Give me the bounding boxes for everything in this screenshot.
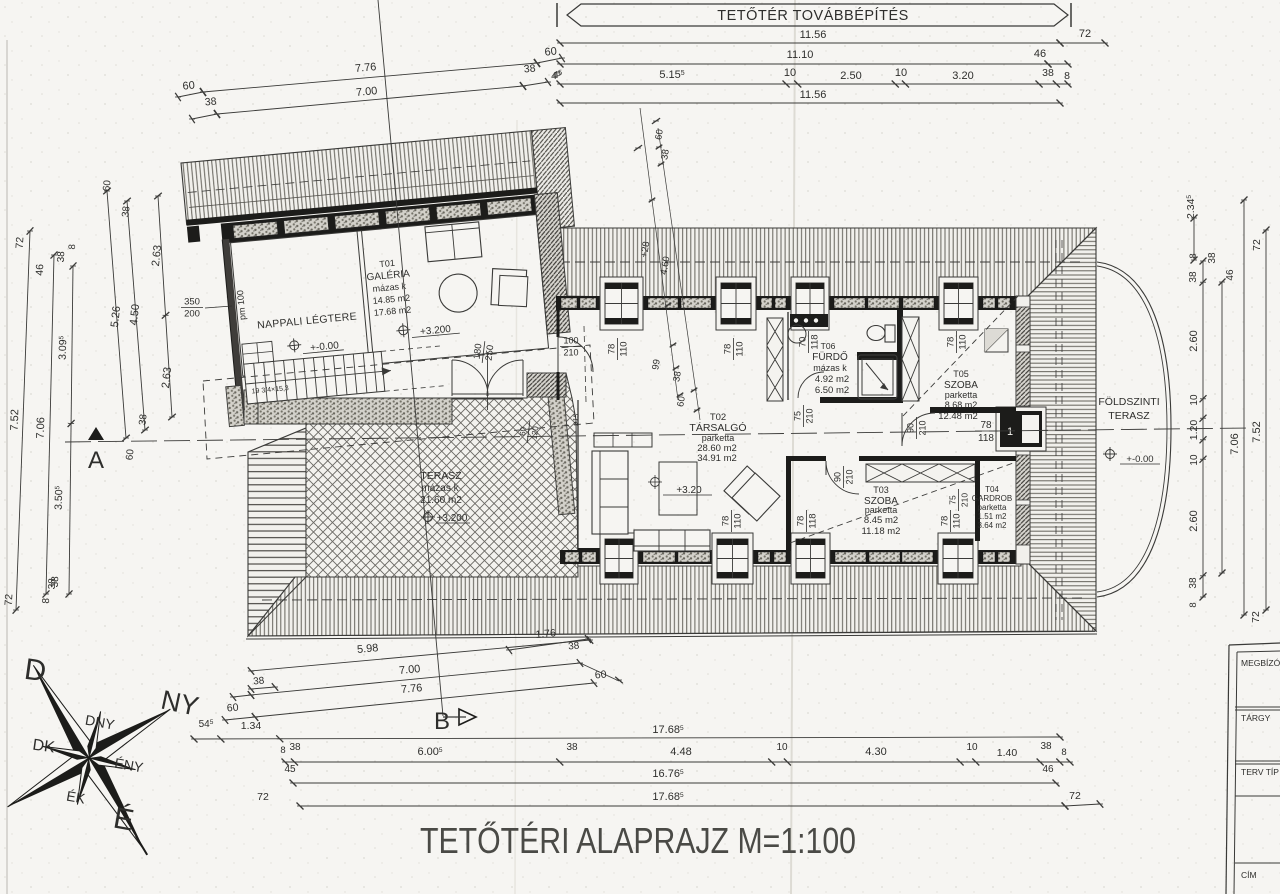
svg-text:78: 78: [723, 344, 734, 355]
svg-text:60: 60: [653, 128, 666, 140]
svg-text:7.76: 7.76: [401, 682, 423, 696]
svg-text:4.48: 4.48: [670, 746, 691, 758]
svg-text:90: 90: [833, 472, 843, 482]
svg-text:350: 350: [184, 297, 200, 308]
svg-text:17.685: 17.685: [652, 791, 684, 803]
svg-text:mázas k: mázas k: [421, 483, 459, 494]
svg-text:T04: T04: [985, 485, 999, 494]
svg-text:200: 200: [184, 309, 200, 320]
svg-text:110: 110: [619, 341, 630, 356]
svg-text:parketta: parketta: [978, 503, 1007, 512]
svg-text:38: 38: [253, 675, 266, 687]
svg-text:118: 118: [808, 513, 819, 528]
svg-text:60: 60: [182, 79, 195, 92]
svg-text:T05: T05: [953, 369, 969, 379]
svg-text:72: 72: [1250, 611, 1262, 623]
svg-text:8.45 m2: 8.45 m2: [864, 515, 898, 526]
svg-text:10: 10: [776, 742, 788, 753]
svg-text:38: 38: [137, 413, 149, 426]
svg-text:2.63: 2.63: [150, 244, 164, 267]
svg-text:72: 72: [1251, 239, 1263, 251]
svg-text:A: A: [88, 447, 104, 474]
svg-text:78: 78: [721, 516, 732, 527]
svg-text:GARDROB: GARDROB: [972, 494, 1012, 503]
svg-text:8: 8: [280, 745, 285, 756]
svg-text:10: 10: [966, 742, 978, 753]
svg-text:11.10: 11.10: [787, 49, 814, 61]
svg-text:11.18 m2: 11.18 m2: [862, 526, 901, 537]
svg-text:7.00: 7.00: [399, 663, 421, 677]
svg-text:70: 70: [798, 337, 809, 348]
svg-text:72: 72: [14, 236, 27, 249]
svg-text:60: 60: [124, 448, 136, 461]
svg-text:7.52: 7.52: [1251, 421, 1263, 442]
svg-text:FÖLDSZINTI: FÖLDSZINTI: [1098, 396, 1159, 408]
svg-text:7.06: 7.06: [1229, 433, 1241, 454]
svg-text:72: 72: [3, 593, 16, 606]
svg-text:110: 110: [735, 341, 746, 356]
svg-text:38: 38: [289, 742, 301, 753]
svg-text:+-0.00: +-0.00: [1126, 454, 1153, 465]
svg-text:2.63: 2.63: [160, 366, 174, 389]
svg-text:2.60: 2.60: [1188, 330, 1200, 351]
svg-text:21.60 m2: 21.60 m2: [420, 495, 462, 506]
svg-text:TÁRGY: TÁRGY: [1241, 713, 1271, 723]
svg-text:ÉK: ÉK: [65, 788, 87, 807]
svg-text:4.30: 4.30: [865, 746, 886, 758]
svg-text:118: 118: [810, 334, 821, 349]
svg-text:78: 78: [796, 516, 807, 527]
svg-text:60: 60: [101, 179, 113, 192]
svg-text:7.76: 7.76: [355, 61, 377, 75]
svg-text:72: 72: [257, 791, 269, 803]
svg-text:16.765: 16.765: [652, 768, 684, 780]
svg-text:210: 210: [918, 420, 928, 435]
svg-text:45: 45: [284, 764, 296, 775]
svg-text:38: 38: [671, 370, 684, 382]
svg-text:MEGBÍZÓ: MEGBÍZÓ: [1241, 658, 1280, 668]
svg-text:38: 38: [523, 62, 536, 75]
svg-text:75: 75: [793, 411, 803, 421]
svg-text:38: 38: [1188, 577, 1199, 589]
svg-text:38: 38: [566, 742, 578, 753]
svg-text:38: 38: [50, 576, 62, 588]
svg-text:11.56: 11.56: [800, 29, 827, 41]
svg-text:D: D: [22, 653, 48, 689]
svg-text:90: 90: [906, 423, 916, 433]
svg-text:210: 210: [805, 408, 815, 423]
svg-text:46: 46: [1042, 764, 1054, 775]
svg-text:1: 1: [1007, 426, 1013, 438]
svg-text:DK: DK: [31, 737, 56, 757]
svg-text:8: 8: [1064, 70, 1070, 82]
svg-text:11.56: 11.56: [800, 89, 827, 101]
svg-text:78: 78: [946, 337, 957, 348]
svg-text:+3.20: +3.20: [676, 485, 702, 496]
svg-text:5.26: 5.26: [109, 305, 123, 328]
svg-text:210: 210: [960, 493, 970, 507]
svg-text:34.91 m2: 34.91 m2: [697, 453, 737, 464]
svg-text:100: 100: [563, 336, 578, 346]
svg-text:46: 46: [1034, 48, 1046, 60]
svg-text:ø15: ø15: [572, 413, 580, 426]
svg-text:TERASZ: TERASZ: [420, 470, 462, 482]
svg-text:10: 10: [1189, 454, 1200, 466]
svg-text:38: 38: [1042, 67, 1054, 79]
svg-text:T03: T03: [873, 485, 889, 495]
svg-text:+3.200: +3.200: [437, 513, 468, 524]
svg-text:210: 210: [845, 469, 855, 484]
svg-text:1.20: 1.20: [1188, 420, 1200, 441]
svg-text:B: B: [434, 708, 450, 735]
svg-text:38: 38: [568, 640, 581, 652]
svg-text:46: 46: [1225, 269, 1236, 281]
svg-text:10: 10: [1189, 394, 1200, 406]
svg-text:TERASZ: TERASZ: [1108, 410, 1150, 422]
svg-text:5.98: 5.98: [357, 642, 379, 656]
svg-text:2.50: 2.50: [840, 70, 861, 82]
svg-text:46: 46: [34, 264, 47, 276]
svg-text:72: 72: [1079, 28, 1091, 40]
svg-text:78: 78: [607, 344, 618, 355]
svg-text:1.76: 1.76: [535, 627, 557, 641]
svg-text:6.50 m2: 6.50 m2: [815, 385, 849, 396]
svg-text:2.60: 2.60: [1188, 510, 1200, 531]
svg-text:parketta: parketta: [865, 505, 898, 515]
svg-text:60: 60: [544, 45, 557, 58]
svg-text:60: 60: [518, 426, 528, 436]
svg-text:38: 38: [56, 251, 68, 263]
svg-text:10: 10: [784, 67, 796, 79]
svg-text:1.40: 1.40: [997, 747, 1018, 759]
svg-text:8: 8: [41, 597, 52, 604]
svg-text:4.50: 4.50: [128, 303, 142, 326]
svg-text:7.52: 7.52: [9, 409, 22, 431]
svg-text:75: 75: [948, 495, 958, 505]
svg-text:3.64 m2: 3.64 m2: [978, 521, 1007, 530]
svg-text:110: 110: [733, 513, 744, 528]
svg-text:99: 99: [650, 358, 663, 370]
svg-text:8: 8: [1061, 747, 1066, 758]
svg-text:10: 10: [895, 67, 907, 79]
svg-text:110: 110: [952, 513, 963, 528]
svg-text:4.92 m2: 4.92 m2: [815, 374, 849, 385]
svg-text:8: 8: [1188, 602, 1199, 607]
svg-text:210: 210: [563, 348, 578, 358]
svg-text:1.51 m2: 1.51 m2: [978, 512, 1007, 521]
svg-text:1.34: 1.34: [241, 720, 262, 732]
svg-text:17.685: 17.685: [652, 724, 684, 736]
svg-text:38: 38: [659, 148, 672, 160]
svg-text:TERV TÍP: TERV TÍP: [1241, 767, 1279, 777]
svg-text:CÍM: CÍM: [1241, 870, 1257, 880]
svg-text:mázas k: mázas k: [813, 363, 847, 373]
svg-text:FÜRDŐ: FÜRDŐ: [812, 349, 848, 363]
svg-text:60: 60: [226, 701, 239, 714]
svg-text:TETŐTÉRI ALAPRAJZ M=1:100: TETŐTÉRI ALAPRAJZ M=1:100: [420, 820, 856, 861]
svg-text:8: 8: [67, 244, 78, 250]
svg-text:72: 72: [1069, 790, 1081, 802]
svg-text:TETŐTÉR TOVÁBBÉPÍTÉS: TETŐTÉR TOVÁBBÉPÍTÉS: [717, 7, 909, 24]
svg-text:T01: T01: [379, 258, 395, 269]
svg-text:T06: T06: [821, 341, 836, 351]
svg-text:3.20: 3.20: [952, 70, 973, 82]
svg-text:118: 118: [978, 433, 994, 444]
svg-text:38: 38: [120, 205, 132, 218]
svg-text:38: 38: [204, 95, 217, 108]
svg-text:78: 78: [940, 516, 951, 527]
svg-text:7.00: 7.00: [356, 85, 378, 99]
svg-text:8: 8: [1188, 253, 1199, 258]
svg-text:7.06: 7.06: [35, 417, 48, 439]
svg-text:110: 110: [958, 334, 969, 349]
svg-text:250: 250: [484, 344, 497, 361]
svg-text:38: 38: [1207, 252, 1218, 264]
svg-text:38: 38: [1040, 741, 1052, 752]
svg-text:78: 78: [980, 420, 992, 431]
svg-text:38: 38: [1188, 271, 1199, 283]
svg-text:parketta: parketta: [945, 390, 978, 400]
svg-text:120: 120: [530, 425, 541, 440]
